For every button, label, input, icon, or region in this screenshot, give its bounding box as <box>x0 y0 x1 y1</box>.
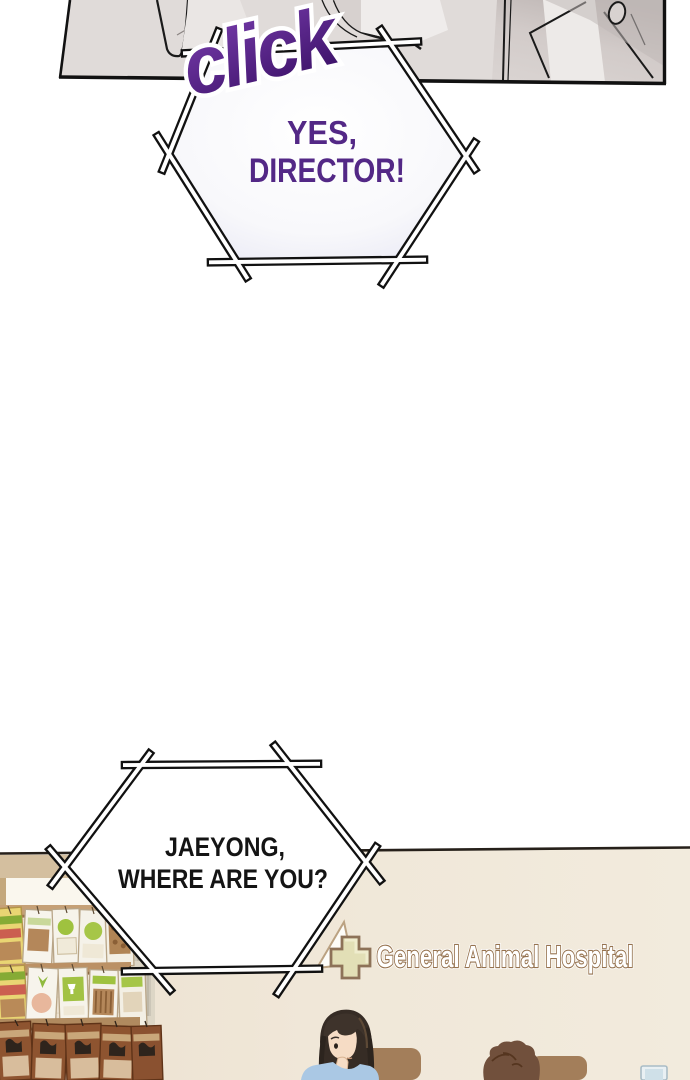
svg-text:YES,: YES, <box>287 114 357 151</box>
svg-text:click: click <box>174 0 350 110</box>
svg-text:WHERE ARE YOU?: WHERE ARE YOU? <box>118 864 328 894</box>
svg-text:JAEYONG,: JAEYONG, <box>165 832 285 862</box>
svg-text:DIRECTOR!: DIRECTOR! <box>249 152 405 190</box>
